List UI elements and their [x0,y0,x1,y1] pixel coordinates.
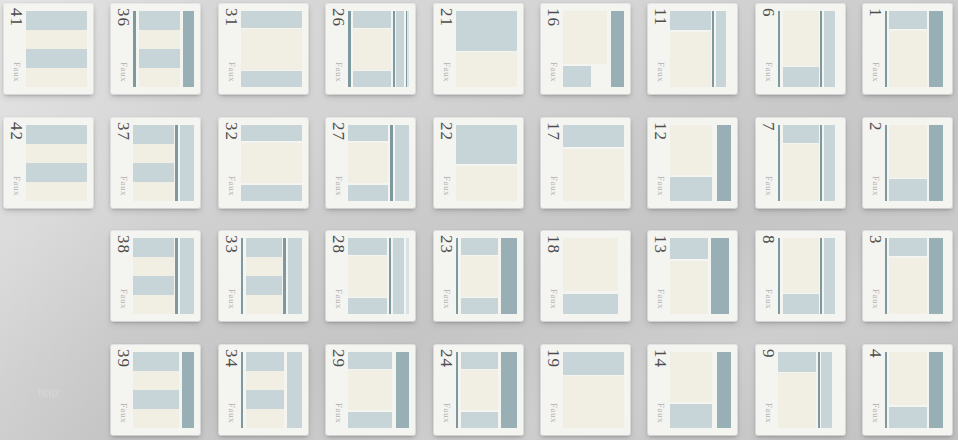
preview-block-blue [139,11,180,30]
layout-preview [778,238,839,314]
layout-preview [348,238,409,314]
preview-block-blue [395,125,410,201]
preview-block-blue [889,11,927,29]
preview-block-dark [929,125,942,201]
preview-block-line [241,352,243,428]
preview-block-blue [26,11,87,30]
preview-block-dark [717,352,732,428]
preview-block-blue [348,352,392,369]
stamp-number: 22 [438,122,455,141]
preview-block-blue [287,352,302,428]
preview-block-cream [563,11,607,64]
stamp-thumbnail-37[interactable]: 37Faux [111,118,200,208]
stamp-side-strip: 39Faux [111,345,133,435]
stamp-thumbnail-29[interactable]: 29Faux [326,345,415,435]
stamp-thumbnail-8[interactable]: 8Faux [756,231,845,321]
stamp-number: 42 [8,122,25,141]
preview-block-blue [461,352,498,369]
layout-preview [241,11,302,87]
stamp-label: Faux [227,289,236,309]
layout-preview [456,352,517,428]
layout-preview [563,11,624,87]
stamp-side-strip: 6Faux [756,4,778,94]
preview-block-blue [180,125,195,201]
stamp-label: Faux [656,62,665,82]
stamp-number: 27 [330,122,347,141]
preview-block-blue [824,238,834,314]
stamp-thumbnail-24[interactable]: 24Faux [434,345,523,435]
stamp-gallery: http: 41Faux36Faux31Faux26Faux21Faux16Fa… [0,0,958,440]
stamp-side-strip: 34Faux [219,345,241,435]
stamp-thumbnail-23[interactable]: 23Faux [434,231,523,321]
stamp-label: Faux [871,176,880,196]
layout-preview [778,11,839,87]
stamp-thumbnail-13[interactable]: 13Faux [648,231,737,321]
preview-block-cream [246,295,281,314]
layout-preview [456,11,517,87]
stamp-side-strip: 37Faux [111,118,133,208]
stamp-label: Faux [442,62,451,82]
stamp-label: Faux [764,62,773,82]
layout-preview [241,125,302,201]
stamp-thumbnail-36[interactable]: 36Faux [111,4,200,94]
preview-block-blue [26,163,87,182]
preview-block-blue [563,294,618,315]
preview-block-line [885,11,887,87]
layout-preview [563,352,624,428]
preview-block-cream [563,238,618,291]
stamp-thumbnail-9[interactable]: 9Faux [756,345,845,435]
preview-block-line [456,352,458,428]
preview-block-cream [348,370,392,410]
stamp-side-strip: 36Faux [111,4,133,94]
stamp-thumbnail-32[interactable]: 32Faux [219,118,308,208]
preview-block-cream [133,295,173,314]
layout-preview [241,238,302,314]
preview-block-blue [778,352,816,372]
stamp-label: Faux [549,176,558,196]
preview-block-cream [889,125,927,178]
preview-block-blue [133,163,173,182]
preview-block-line [283,238,285,314]
stamp-side-strip: 41Faux [4,4,26,94]
stamp-number: 33 [223,235,240,254]
preview-block-cream [133,409,178,428]
preview-block-dark [611,11,624,87]
preview-block-blue [889,179,927,200]
preview-block-cream [246,371,284,390]
stamp-thumbnail-39[interactable]: 39Faux [111,345,200,435]
preview-block-cream [133,144,173,163]
stamp-thumbnail-34[interactable]: 34Faux [219,345,308,435]
stamp-number: 31 [223,8,240,27]
preview-block-blue [456,125,517,165]
stamp-side-strip: 1Faux [863,4,885,94]
preview-block-cream [139,68,180,87]
preview-block-blue [670,11,710,30]
stamp-thumbnail-17[interactable]: 17Faux [541,118,630,208]
stamp-thumbnail-42[interactable]: 42Faux [4,118,93,208]
preview-block-cream [241,143,302,183]
stamp-label: Faux [549,62,558,82]
stamp-number: 24 [438,349,455,368]
stamp-number: 34 [223,349,240,368]
layout-preview [885,238,946,314]
stamp-number: 39 [115,349,132,368]
preview-block-dark [183,11,194,87]
stamp-label: Faux [334,62,343,82]
preview-block-line [712,11,714,87]
stamp-side-strip: 27Faux [326,118,348,208]
stamp-thumbnail-11[interactable]: 11Faux [648,4,737,94]
stamp-number: 9 [760,349,777,359]
stamp-side-strip: 11Faux [648,4,670,94]
preview-block-cream [783,238,818,293]
stamp-side-strip: 16Faux [541,4,563,94]
preview-block-cream [563,376,624,428]
layout-preview [133,125,194,201]
stamp-thumbnail-4[interactable]: 4Faux [863,345,952,435]
preview-block-blue [393,238,404,314]
stamp-side-strip: 4Faux [863,345,885,435]
preview-block-blue [348,185,388,201]
stamp-number: 21 [438,8,455,27]
stamp-side-strip: 42Faux [4,118,26,208]
stamp-number: 28 [330,235,347,254]
stamp-number: 23 [438,235,455,254]
preview-block-line [175,125,177,201]
stamp-number: 4 [867,349,884,359]
preview-block-line [348,11,350,87]
preview-block-blue [396,11,404,87]
preview-block-blue [783,125,818,143]
preview-block-blue [456,11,517,51]
stamp-label: Faux [871,289,880,309]
stamp-side-strip: 33Faux [219,231,241,321]
layout-preview [563,238,624,314]
preview-block-cream [133,371,178,390]
stamp-side-strip: 7Faux [756,118,778,208]
preview-block-cream [889,258,927,314]
preview-block-cream [348,143,388,183]
stamp-label: Faux [442,289,451,309]
stamp-label: Faux [227,403,236,423]
preview-block-cream [353,29,391,69]
preview-block-dark [182,352,194,428]
preview-block-blue [716,11,727,87]
layout-preview [241,352,302,428]
preview-block-line [133,11,135,87]
preview-block-blue [348,412,392,428]
stamp-label: Faux [119,176,128,196]
preview-block-line [778,238,780,314]
stamp-side-strip: 3Faux [863,231,885,321]
stamp-side-strip: 28Faux [326,231,348,321]
stamp-thumbnail-18[interactable]: 18Faux [541,231,630,321]
preview-block-line [820,125,822,201]
layout-preview [885,352,946,428]
stamp-side-strip: 22Faux [434,118,456,208]
stamp-label: Faux [656,289,665,309]
preview-block-blue [670,177,711,201]
preview-block-cream [889,352,927,405]
stamp-number: 41 [8,8,25,27]
layout-preview [26,11,87,87]
stamp-number: 17 [545,122,562,141]
layout-preview [26,125,87,201]
stamp-number: 2 [867,122,884,132]
stamp-number: 3 [867,235,884,245]
layout-preview [670,238,731,314]
preview-block-line [818,352,820,428]
preview-block-cream [246,257,281,276]
preview-block-blue [246,352,284,371]
stamp-label: Faux [119,289,128,309]
stamp-label: Faux [442,176,451,196]
preview-block-blue [26,49,87,68]
preview-block-blue [246,238,281,257]
preview-block-dark [501,352,517,428]
stamp-side-strip: 8Faux [756,231,778,321]
stamp-side-strip: 24Faux [434,345,456,435]
preview-block-blue [133,125,173,144]
preview-block-cream [889,31,927,87]
stamp-number: 12 [652,122,669,141]
preview-block-dark [929,238,942,314]
stamp-number: 11 [652,8,669,26]
preview-block-line [456,238,458,314]
preview-block-blue [821,352,832,428]
preview-block-blue [180,238,195,314]
preview-block-line [778,125,780,201]
preview-block-blue [670,238,708,259]
preview-block-blue [241,11,302,28]
preview-block-line [885,125,887,201]
stamp-side-strip: 14Faux [648,345,670,435]
preview-block-cream [670,125,711,175]
stamp-number: 38 [115,235,132,254]
preview-block-blue [824,11,834,87]
stamp-thumbnail-38[interactable]: 38Faux [111,231,200,321]
stamp-side-strip: 21Faux [434,4,456,94]
preview-block-cream [139,30,180,49]
preview-block-blue [670,404,711,428]
preview-block-cream [783,11,818,66]
stamp-label: Faux [549,403,558,423]
stamp-label: Faux [12,176,21,196]
preview-block-cream [133,182,173,201]
preview-block-blue [241,185,302,201]
preview-block-cream [670,261,708,314]
stamp-thumbnail-26[interactable]: 26Faux [326,4,415,94]
layout-preview [133,352,194,428]
stamp-thumbnail-14[interactable]: 14Faux [648,345,737,435]
stamp-thumbnail-3[interactable]: 3Faux [863,231,952,321]
preview-block-blue [461,412,498,428]
preview-block-blue [889,238,927,256]
stamp-thumbnail-31[interactable]: 31Faux [219,4,308,94]
stamp-side-strip: 9Faux [756,345,778,435]
preview-block-blue [889,407,927,428]
layout-preview [885,11,946,87]
stamp-label: Faux [764,176,773,196]
layout-preview [563,125,624,201]
preview-block-dark [396,352,409,428]
stamp-thumbnail-2[interactable]: 2Faux [863,118,952,208]
preview-block-blue [824,125,835,201]
preview-block-cream [133,257,173,276]
stamp-label: Faux [334,176,343,196]
preview-block-dark [717,125,732,201]
stamp-label: Faux [227,176,236,196]
preview-block-blue [26,125,87,144]
stamp-side-strip: 32Faux [219,118,241,208]
stamp-number: 32 [223,122,240,141]
stamp-thumbnail-19[interactable]: 19Faux [541,345,630,435]
stamp-number: 29 [330,349,347,368]
preview-block-blue [563,125,624,148]
preview-block-blue [348,298,387,314]
stamp-side-strip: 2Faux [863,118,885,208]
preview-block-cream [461,256,498,296]
stamp-thumbnail-7[interactable]: 7Faux [756,118,845,208]
stamp-label: Faux [227,62,236,82]
preview-block-dark [929,352,942,428]
preview-block-cream [26,30,87,49]
stamp-thumbnail-27[interactable]: 27Faux [326,118,415,208]
layout-preview [133,11,194,87]
preview-block-blue [461,238,498,255]
stamp-side-strip: 29Faux [326,345,348,435]
stamp-number: 16 [545,8,562,27]
preview-block-cream [778,373,816,428]
preview-block-line [393,11,395,87]
stamp-thumbnail-33[interactable]: 33Faux [219,231,308,321]
preview-block-cream [456,52,517,87]
preview-block-cream [563,149,624,201]
preview-block-blue [783,67,818,87]
preview-block-cream [26,68,87,87]
preview-block-blue [353,11,391,28]
layout-preview [670,125,731,201]
preview-block-blue [241,125,302,142]
preview-block-blue [133,352,178,371]
stamp-side-strip: 17Faux [541,118,563,208]
stamp-side-strip: 38Faux [111,231,133,321]
layout-preview [348,125,409,201]
layout-preview [670,352,731,428]
stamp-side-strip: 26Faux [326,4,348,94]
stamp-side-strip: 13Faux [648,231,670,321]
preview-block-blue [348,238,387,255]
stamp-label: Faux [871,403,880,423]
stamp-label: Faux [656,176,665,196]
stamp-thumbnail-16[interactable]: 16Faux [541,4,630,94]
layout-preview [348,352,409,428]
preview-block-line [820,11,822,87]
stamp-number: 6 [760,8,777,18]
stamp-number: 13 [652,235,669,254]
preview-block-line [820,238,822,314]
preview-block-cream [26,144,87,163]
layout-preview [670,11,731,87]
stamp-side-strip: 18Faux [541,231,563,321]
preview-block-blue [783,294,818,314]
stamp-number: 37 [115,122,132,141]
stamp-label: Faux [764,403,773,423]
layout-preview [778,352,839,428]
stamp-thumbnail-21[interactable]: 21Faux [434,4,523,94]
stamp-number: 8 [760,235,777,245]
preview-block-line [175,238,177,314]
preview-block-blue [139,49,180,68]
preview-block-blue [563,352,624,375]
preview-block-dark [929,11,942,87]
preview-block-cream [461,370,498,410]
stamp-label: Faux [334,403,343,423]
preview-block-blue [133,276,173,295]
stamp-thumbnail-22[interactable]: 22Faux [434,118,523,208]
layout-preview [456,125,517,201]
preview-block-dark [501,238,517,314]
stamp-number: 19 [545,349,562,368]
preview-block-blue_light [406,238,409,314]
preview-block-cream [241,29,302,69]
stamp-number: 18 [545,235,562,254]
preview-block-line [885,238,887,314]
stamp-side-strip: 12Faux [648,118,670,208]
stamp-label: Faux [549,289,558,309]
layout-preview [348,11,409,87]
stamp-side-strip: 31Faux [219,4,241,94]
preview-block-blue [133,238,173,257]
stamp-thumbnail-12[interactable]: 12Faux [648,118,737,208]
preview-block-cream [26,182,87,201]
stamp-thumbnail-1[interactable]: 1Faux [863,4,952,94]
layout-preview [885,125,946,201]
preview-block-line [778,11,780,87]
preview-block-blue [133,390,178,409]
layout-preview [778,125,839,201]
preview-block-cream [783,144,818,200]
stamp-label: Faux [871,62,880,82]
stamp-label: Faux [12,62,21,82]
stamp-number: 26 [330,8,347,27]
preview-block-blue [348,125,388,142]
layout-preview [456,238,517,314]
preview-block-blue [461,298,498,314]
preview-block-cream [246,409,284,428]
preview-block-line [241,238,243,314]
stamp-side-strip: 23Faux [434,231,456,321]
preview-block-blue [246,390,284,409]
stamp-label: Faux [119,403,128,423]
stamp-side-strip: 19Faux [541,345,563,435]
stamp-thumbnail-41[interactable]: 41Faux [4,4,93,94]
stamp-thumbnail-6[interactable]: 6Faux [756,4,845,94]
http-watermark: http: [38,386,62,398]
stamp-thumbnail-28[interactable]: 28Faux [326,231,415,321]
stamp-number: 1 [867,8,884,18]
stamp-label: Faux [656,403,665,423]
preview-block-line [885,352,887,428]
preview-block-cream [670,352,711,402]
layout-preview [133,238,194,314]
preview-block-cream [348,256,387,296]
preview-block-dark [711,238,729,314]
preview-block-line [390,125,392,201]
preview-block-blue [241,71,302,87]
